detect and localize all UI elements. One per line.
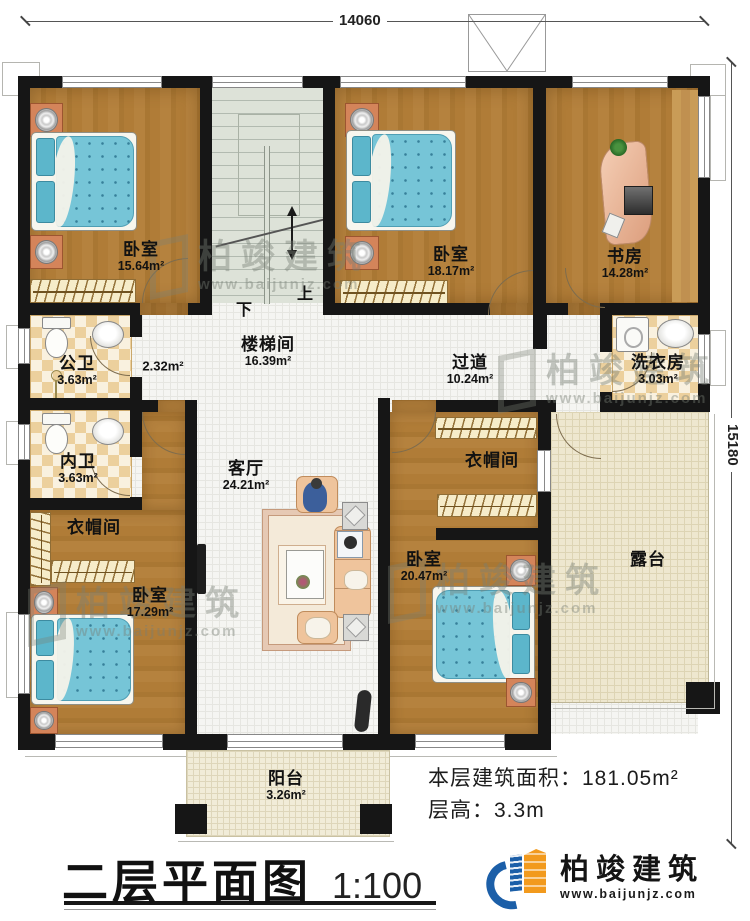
roof-skylight-braces <box>469 15 545 71</box>
drawing-title: 二层平面图 <box>62 846 312 912</box>
window-sill-laundry <box>710 330 726 386</box>
window <box>18 614 30 694</box>
room-label-corridor: 过道10.24m² <box>447 354 494 386</box>
stair-direction-line <box>291 216 293 250</box>
window <box>62 76 162 88</box>
wall <box>533 315 547 349</box>
window <box>55 734 163 748</box>
room-label-stairwell: 楼梯间16.39m² <box>241 336 295 368</box>
eave-line-bottom-left <box>25 756 186 757</box>
person-on-sofa <box>344 536 357 549</box>
wall <box>185 400 197 734</box>
area-label-niche: 2.32m² <box>142 360 183 375</box>
wall <box>436 528 538 540</box>
closet-rack <box>435 417 537 439</box>
pillow <box>36 660 54 700</box>
lamp-icon <box>34 591 54 613</box>
stair-label-down: 下 <box>236 296 252 320</box>
terrace-parapet-line <box>553 708 715 709</box>
wall <box>188 303 212 315</box>
pillow <box>512 592 530 630</box>
computer-monitor <box>624 186 653 215</box>
room-label-cloak-left: 衣帽间 <box>67 519 121 537</box>
lamp-icon <box>510 559 531 581</box>
wall <box>600 303 710 315</box>
balcony-column <box>360 804 392 834</box>
wall <box>601 400 710 412</box>
sofa-cushion <box>305 617 331 639</box>
nightstand <box>30 235 63 269</box>
nightstand <box>506 555 536 586</box>
plant-icon <box>610 139 627 156</box>
floor-area-label: 本层建筑面积： <box>428 767 582 790</box>
lamp-icon <box>350 241 374 265</box>
wall <box>378 398 390 734</box>
stair-arrow-down <box>287 250 297 260</box>
terrace-parapet-line <box>714 414 715 708</box>
window <box>572 76 668 88</box>
window-sill-study <box>710 95 726 181</box>
lamp-icon <box>35 240 59 264</box>
logo-building-blue-icon <box>510 854 522 891</box>
wall <box>505 734 551 750</box>
table-flowers-icon <box>296 575 310 589</box>
floor-plan-sheet: 柏竣建筑www.baijunjz.com 柏竣建筑www.baijunjz.co… <box>0 0 750 921</box>
nightstand <box>506 678 536 707</box>
room-label-bedroom-bl: 卧室17.29m² <box>127 587 174 619</box>
closet-rack <box>30 512 51 586</box>
brand-url: www.baijunjz.com <box>560 885 704 904</box>
lamp-icon <box>34 711 54 730</box>
sink <box>92 418 124 445</box>
window <box>537 450 551 492</box>
wall <box>533 76 546 315</box>
nightstand <box>345 236 379 270</box>
pillow <box>36 181 55 223</box>
floor-area-value: 181.05m² <box>582 767 679 790</box>
balcony-sliding-door <box>227 734 343 748</box>
window <box>698 96 710 178</box>
toilet-bowl <box>45 424 68 454</box>
wardrobe <box>340 280 448 304</box>
logo-building-orange-icon <box>524 849 546 893</box>
study-floor-border-strip <box>672 90 698 302</box>
wall <box>546 303 568 315</box>
room-label-study: 书房14.28m² <box>602 248 649 280</box>
stair-arrow-up <box>287 206 297 216</box>
side-table <box>342 502 368 530</box>
balcony-column <box>175 804 207 834</box>
room-label-public-bath: 公卫3.63m² <box>57 355 97 387</box>
brand-name: 柏竣建筑 <box>560 856 704 885</box>
window <box>212 76 303 88</box>
lamp-icon <box>510 682 531 703</box>
brand-logo: 柏竣建筑 www.baijunjz.com <box>486 847 704 913</box>
window <box>415 734 505 748</box>
wall <box>18 498 142 510</box>
window <box>18 328 30 364</box>
wall <box>343 734 415 750</box>
room-label-balcony: 阳台3.26m² <box>266 770 306 802</box>
wall <box>335 303 490 315</box>
pillow <box>352 181 371 223</box>
drawing-title-block: 二层平面图 1:100 <box>62 846 422 912</box>
room-label-cloak-right: 衣帽间 <box>465 452 519 470</box>
stair-label-up: 上 <box>297 280 313 304</box>
wall <box>130 400 158 412</box>
threshold <box>140 303 188 315</box>
wall <box>163 734 227 750</box>
threshold <box>392 400 436 412</box>
room-label-laundry: 洗衣房3.03m² <box>631 354 685 386</box>
window <box>340 76 466 88</box>
room-label-living: 客厅24.21m² <box>223 460 270 492</box>
wall <box>18 303 140 315</box>
closet-rack <box>437 494 537 517</box>
sofa-cushion <box>344 570 368 590</box>
pillow <box>36 138 55 176</box>
sink <box>657 319 694 348</box>
window <box>18 424 30 460</box>
floor-area-row: 本层建筑面积：181.05m² <box>428 762 679 792</box>
pillow <box>512 634 530 674</box>
floor-height-value: 3.3m <box>494 799 545 822</box>
wall <box>436 400 556 412</box>
window <box>698 334 710 384</box>
eave-line-bottom-right <box>389 756 557 757</box>
drawing-scale: 1:100 <box>332 865 422 907</box>
brand-logo-icon <box>486 847 550 913</box>
room-label-bedroom-tm: 卧室18.17m² <box>428 246 475 278</box>
closet-rack <box>51 560 135 583</box>
stair-center-rail <box>264 146 270 304</box>
room-label-terrace: 露台 <box>630 551 666 569</box>
room-label-private-bath: 内卫3.63m² <box>58 453 98 485</box>
floor-height-row: 层高：3.3m <box>428 794 545 824</box>
dimension-right-value: 15180 <box>724 418 741 472</box>
lamp-icon <box>35 108 59 132</box>
tv <box>197 544 206 594</box>
roof-skylight <box>468 14 546 72</box>
wall <box>130 377 142 457</box>
lamp-icon <box>350 108 374 132</box>
floor-height-label: 层高： <box>428 799 494 822</box>
balcony-eave-line <box>178 841 394 842</box>
wall <box>130 315 142 337</box>
wardrobe <box>30 279 136 303</box>
wall <box>600 315 612 352</box>
person-head <box>311 478 322 489</box>
wall <box>200 76 212 315</box>
wall <box>323 76 335 315</box>
threshold <box>600 352 612 392</box>
washing-machine <box>616 317 649 352</box>
nightstand <box>30 707 58 734</box>
room-label-bedroom-tl: 卧室15.64m² <box>118 241 165 273</box>
wall <box>18 734 55 750</box>
room-label-bedroom-br: 卧室20.47m² <box>401 551 448 583</box>
side-table <box>343 614 369 641</box>
threshold <box>158 400 188 412</box>
pillow <box>36 620 54 656</box>
wall <box>18 398 142 410</box>
dimension-top-value: 14060 <box>333 12 387 29</box>
pillow <box>352 136 371 176</box>
